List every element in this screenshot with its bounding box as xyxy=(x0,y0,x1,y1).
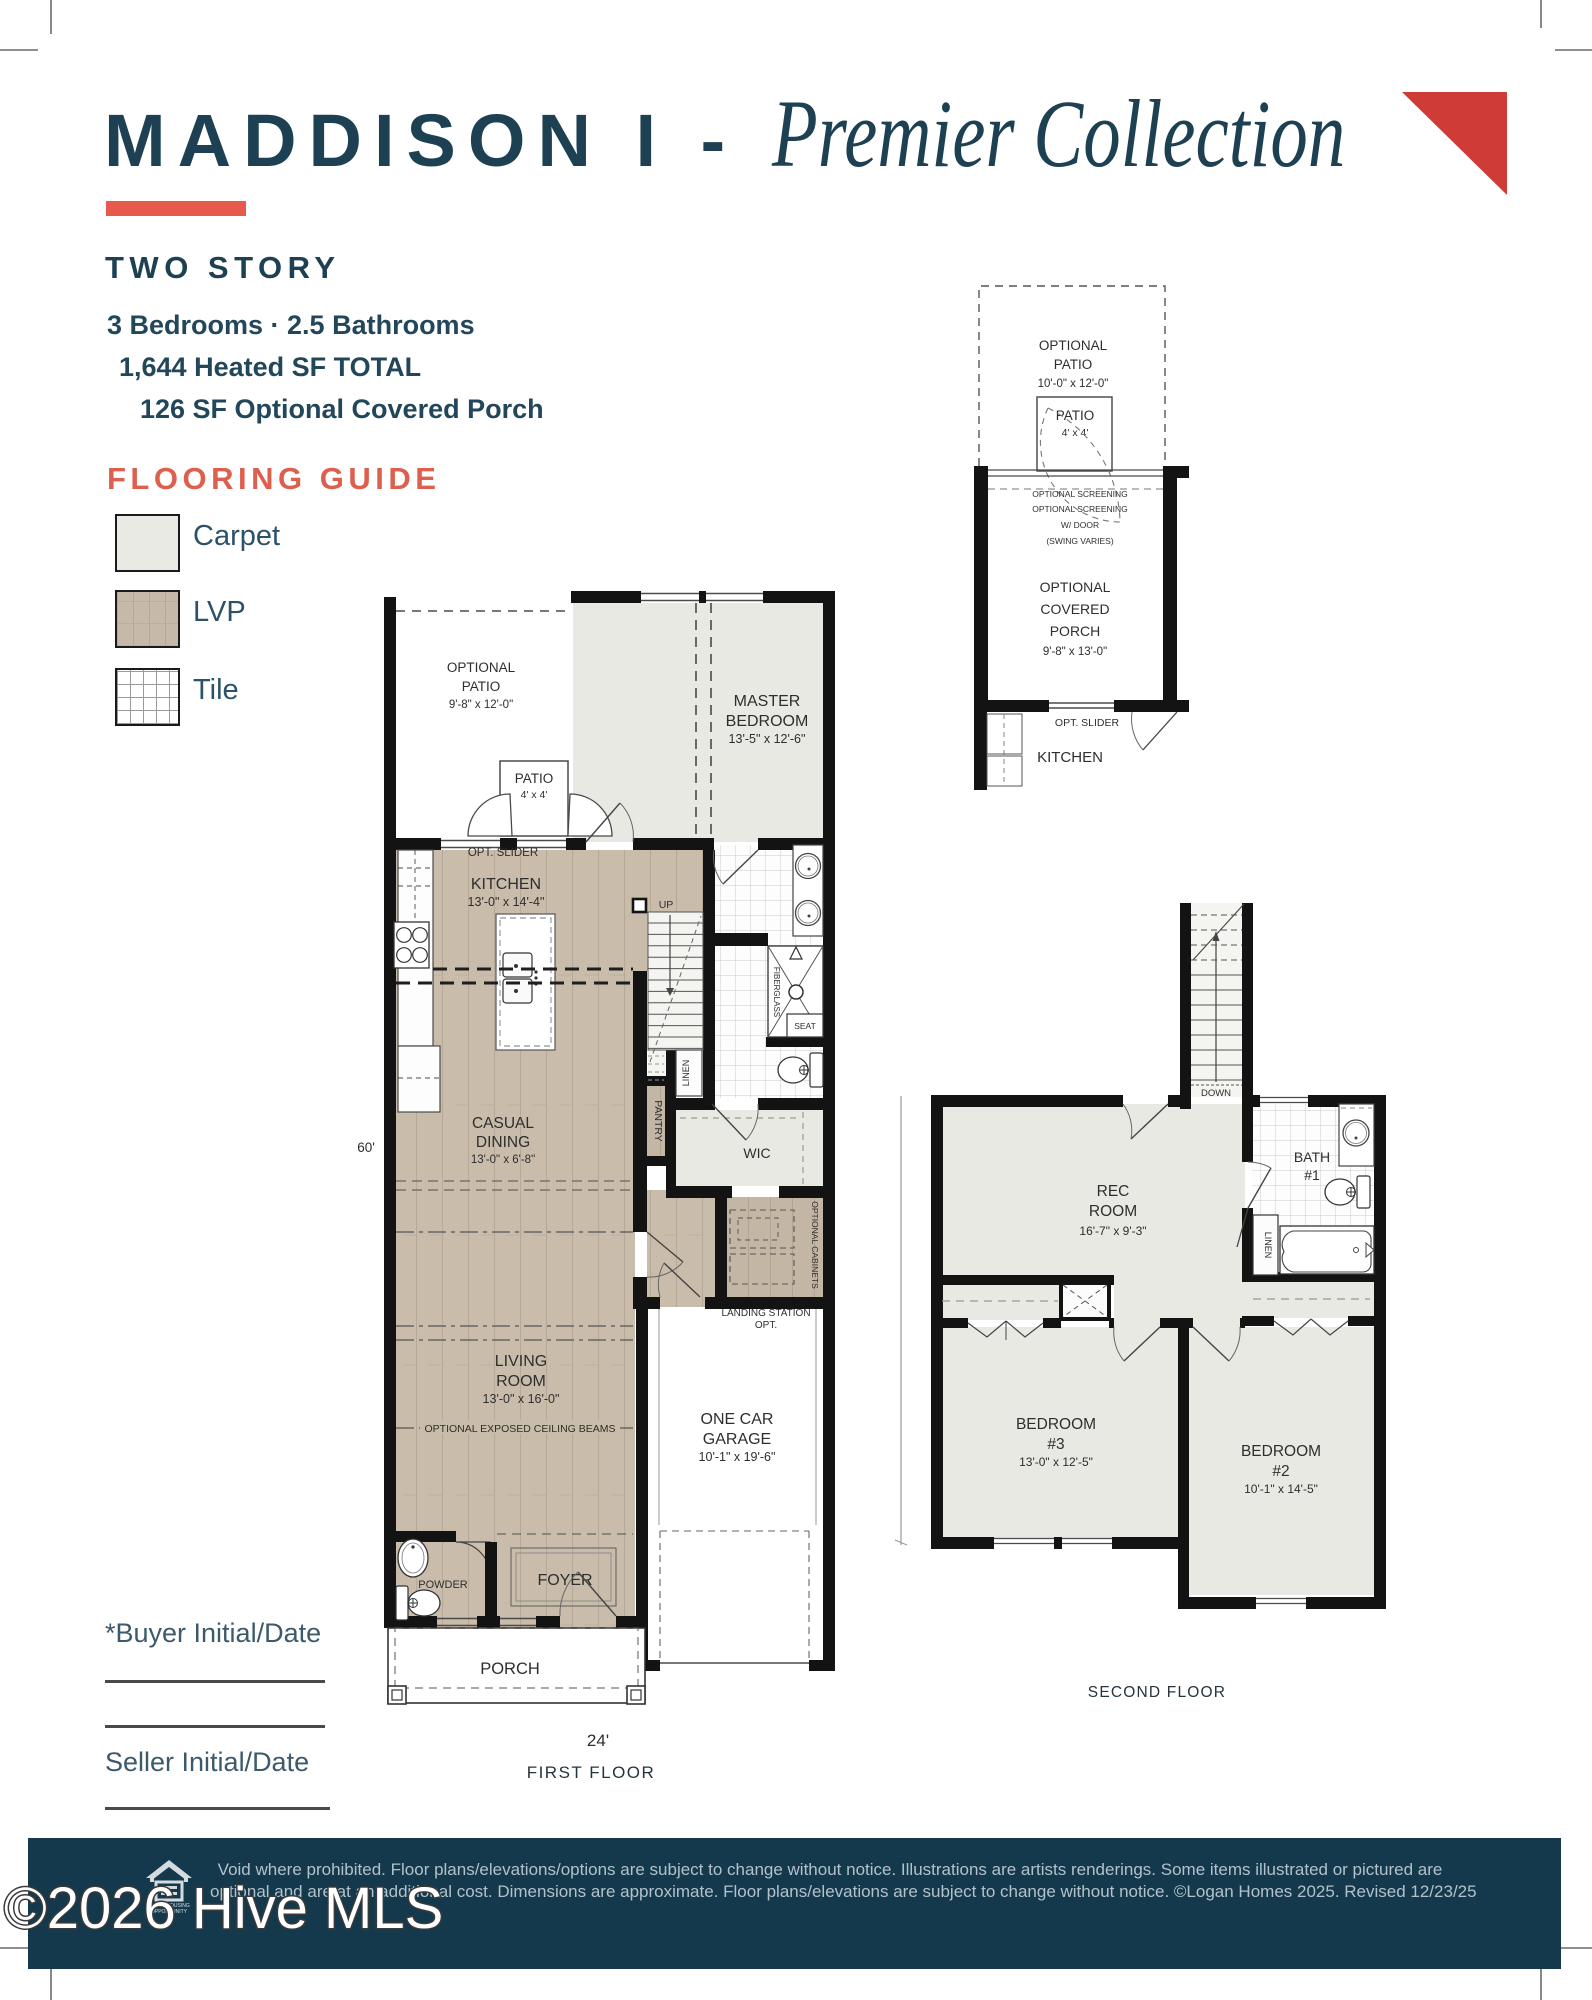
svg-text:9'-8" x 12'-0": 9'-8" x 12'-0" xyxy=(449,699,513,711)
svg-text:LINEN: LINEN xyxy=(681,1060,691,1087)
svg-text:LANDING STATION: LANDING STATION xyxy=(721,1308,810,1319)
svg-text:OPTIONAL SCREENING: OPTIONAL SCREENING xyxy=(1032,489,1128,499)
svg-text:#1: #1 xyxy=(1304,1167,1320,1183)
svg-text:BATH: BATH xyxy=(1294,1149,1330,1165)
svg-text:OPT.: OPT. xyxy=(755,1320,777,1331)
svg-text:10'-1" x 14'-5": 10'-1" x 14'-5" xyxy=(1244,1482,1318,1496)
svg-text:COVERED: COVERED xyxy=(1040,601,1109,617)
svg-text:10'-1" x 19'-6": 10'-1" x 19'-6" xyxy=(699,1450,776,1464)
svg-text:BEDROOM: BEDROOM xyxy=(1241,1443,1321,1460)
svg-text:KITCHEN: KITCHEN xyxy=(471,876,541,893)
svg-text:OPTIONAL: OPTIONAL xyxy=(1040,579,1111,595)
svg-text:BEDROOM: BEDROOM xyxy=(726,713,809,730)
svg-text:PANTRY: PANTRY xyxy=(652,1100,664,1142)
svg-text:60': 60' xyxy=(357,1140,375,1155)
svg-text:13'-0" x 6'-8": 13'-0" x 6'-8" xyxy=(471,1154,535,1166)
svg-text:POWDER: POWDER xyxy=(418,1579,468,1591)
svg-text:OPTIONAL SCREENING: OPTIONAL SCREENING xyxy=(1032,504,1128,514)
svg-text:FIRST FLOOR: FIRST FLOOR xyxy=(527,1763,656,1782)
svg-text:13'-5" x 12'-6": 13'-5" x 12'-6" xyxy=(729,732,806,746)
svg-text:CASUAL: CASUAL xyxy=(472,1115,534,1132)
svg-text:PATIO: PATIO xyxy=(462,679,501,694)
svg-text:13'-0" x 12'-5": 13'-0" x 12'-5" xyxy=(1019,1455,1093,1469)
svg-text:DOWN: DOWN xyxy=(1201,1088,1231,1099)
svg-text:OPT. SLIDER: OPT. SLIDER xyxy=(468,847,538,859)
svg-text:W/ DOOR: W/ DOOR xyxy=(1061,520,1099,530)
svg-text:FIBERGLASS: FIBERGLASS xyxy=(772,967,781,1017)
svg-text:PATIO: PATIO xyxy=(515,771,554,786)
svg-text:PATIO: PATIO xyxy=(1054,357,1093,372)
svg-text:OPTIONAL: OPTIONAL xyxy=(1039,338,1108,353)
svg-text:GARAGE: GARAGE xyxy=(703,1431,771,1448)
svg-text:PORCH: PORCH xyxy=(1050,623,1101,639)
svg-text:WIC: WIC xyxy=(743,1145,770,1161)
svg-text:©2026 Hive MLS: ©2026 Hive MLS xyxy=(4,1876,443,1941)
svg-text:4' x 4': 4' x 4' xyxy=(1062,427,1089,439)
svg-text:DINING: DINING xyxy=(476,1134,530,1151)
svg-text:UP: UP xyxy=(659,899,674,911)
svg-text:OPTIONAL CABINETS: OPTIONAL CABINETS xyxy=(810,1201,820,1289)
svg-text:LIVING: LIVING xyxy=(495,1353,547,1370)
svg-text:10'-0" x 12'-0": 10'-0" x 12'-0" xyxy=(1038,378,1109,390)
svg-text:4' x 4': 4' x 4' xyxy=(521,789,548,801)
svg-text:#2: #2 xyxy=(1272,1463,1289,1480)
svg-text:#3: #3 xyxy=(1047,1436,1064,1453)
svg-text:LINEN: LINEN xyxy=(1263,1232,1273,1259)
svg-text:REC: REC xyxy=(1097,1183,1130,1200)
svg-text:9'-8" x 13'-0": 9'-8" x 13'-0" xyxy=(1043,646,1107,658)
svg-text:13'-0" x 14'-4": 13'-0" x 14'-4" xyxy=(468,895,545,909)
svg-text:ROOM: ROOM xyxy=(496,1373,546,1390)
svg-text:BEDROOM: BEDROOM xyxy=(1016,1416,1096,1433)
svg-text:ONE CAR: ONE CAR xyxy=(701,1411,774,1428)
svg-text:24': 24' xyxy=(587,1731,609,1750)
svg-text:OPTIONAL EXPOSED CEILING BEAMS: OPTIONAL EXPOSED CEILING BEAMS xyxy=(425,1423,616,1435)
svg-text:KITCHEN: KITCHEN xyxy=(1037,749,1103,766)
svg-text:MASTER: MASTER xyxy=(734,693,801,710)
svg-text:(SWING VARIES): (SWING VARIES) xyxy=(1046,536,1114,546)
svg-text:PORCH: PORCH xyxy=(480,1660,540,1678)
svg-text:16'-7" x 9'-3": 16'-7" x 9'-3" xyxy=(1079,1224,1146,1238)
svg-text:SEAT: SEAT xyxy=(794,1021,816,1031)
svg-text:13'-0" x 16'-0": 13'-0" x 16'-0" xyxy=(483,1392,560,1406)
svg-text:FOYER: FOYER xyxy=(537,1572,592,1589)
svg-text:OPTIONAL: OPTIONAL xyxy=(447,660,516,675)
svg-text:ROOM: ROOM xyxy=(1089,1203,1137,1220)
svg-text:SECOND FLOOR: SECOND FLOOR xyxy=(1088,1684,1226,1701)
svg-text:OPT. SLIDER: OPT. SLIDER xyxy=(1055,717,1120,729)
